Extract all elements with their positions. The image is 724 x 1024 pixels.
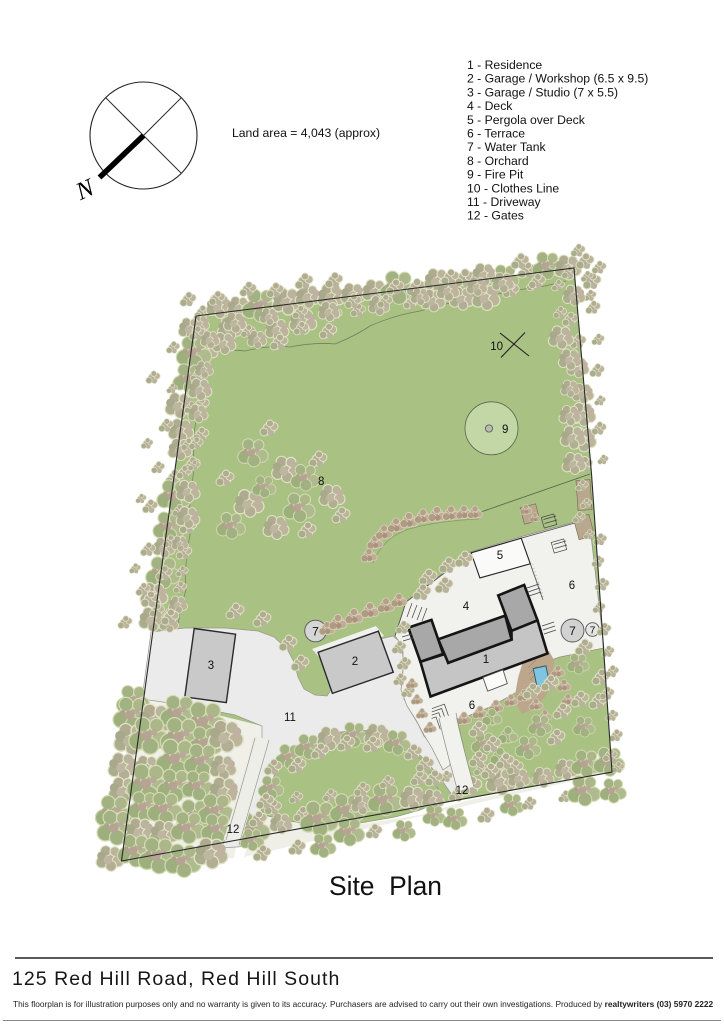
svg-text:125 Red Hill Road, Red Hill So: 125 Red Hill Road, Red Hill South (12, 968, 340, 990)
svg-text:Land area = 4,043 (approx): Land area = 4,043 (approx) (232, 126, 380, 140)
svg-text:7 - Water Tank: 7 - Water Tank (467, 140, 546, 154)
svg-text:4: 4 (463, 601, 470, 613)
svg-text:2: 2 (352, 656, 358, 668)
svg-text:7: 7 (312, 625, 319, 639)
svg-text:9: 9 (502, 424, 508, 436)
svg-text:3 - Garage / Studio (7 x 5.5): 3 - Garage / Studio (7 x 5.5) (467, 85, 618, 99)
svg-text:7: 7 (569, 624, 576, 638)
svg-text:12 - Gates: 12 - Gates (467, 209, 524, 223)
svg-text:12: 12 (227, 824, 240, 836)
svg-text:1: 1 (483, 654, 489, 666)
svg-text:9 - Fire Pit: 9 - Fire Pit (467, 168, 524, 182)
svg-text:3: 3 (208, 660, 214, 672)
svg-text:Site Plan: Site Plan (329, 871, 442, 901)
svg-text:2 - Garage / Workshop (6.5 x 9: 2 - Garage / Workshop (6.5 x 9.5) (467, 72, 648, 86)
svg-text:6: 6 (569, 580, 575, 592)
svg-text:10: 10 (490, 341, 503, 353)
svg-text:5 - Pergola over Deck: 5 - Pergola over Deck (467, 113, 586, 127)
svg-text:1 - Residence: 1 - Residence (467, 58, 542, 72)
svg-text:11 - Driveway: 11 - Driveway (467, 195, 542, 209)
svg-text:8 - Orchard: 8 - Orchard (467, 154, 529, 168)
svg-text:8: 8 (318, 476, 324, 488)
svg-text:10 - Clothes Line: 10 - Clothes Line (467, 181, 559, 195)
svg-text:4 - Deck: 4 - Deck (467, 99, 513, 113)
svg-text:6: 6 (469, 700, 475, 712)
svg-text:11: 11 (284, 712, 296, 724)
svg-text:12: 12 (456, 785, 469, 797)
svg-text:5: 5 (497, 550, 503, 562)
svg-text:7: 7 (590, 626, 596, 637)
svg-text:This floorplan is for illustra: This floorplan is for illustration purpo… (13, 999, 714, 1009)
svg-text:6 - Terrace: 6 - Terrace (467, 127, 525, 141)
